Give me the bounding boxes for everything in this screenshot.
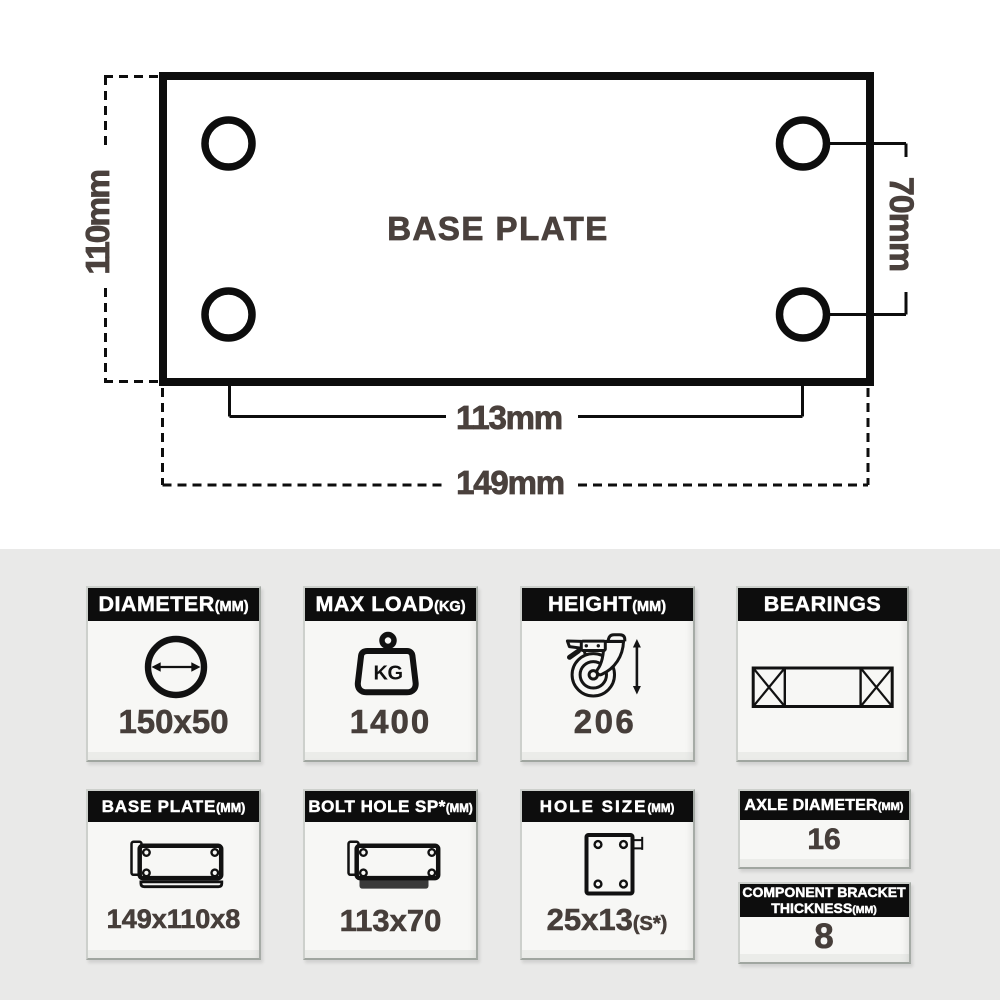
svg-text:113mm: 113mm — [456, 399, 562, 436]
svg-text:110mm: 110mm — [80, 171, 117, 275]
svg-text:KG: KG — [374, 663, 403, 685]
svg-text:149mm: 149mm — [456, 464, 564, 501]
svg-text:70mm: 70mm — [882, 177, 920, 271]
svg-text:BASE PLATE: BASE PLATE — [387, 210, 609, 247]
